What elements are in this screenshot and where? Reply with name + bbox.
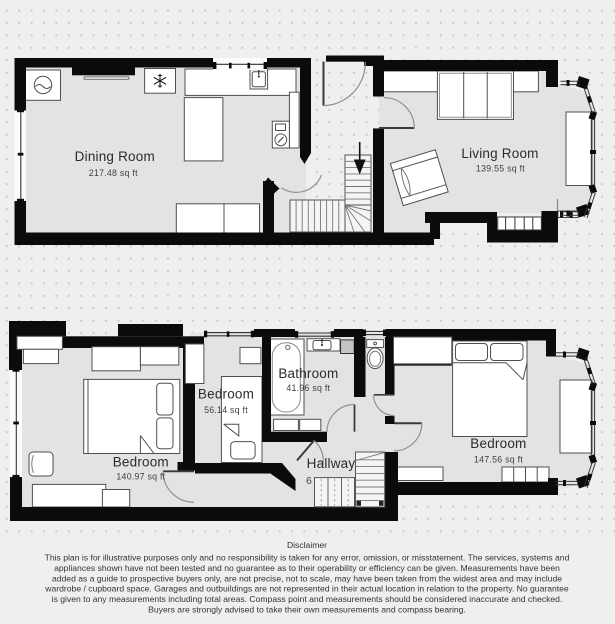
svg-text:Bathroom: Bathroom bbox=[278, 366, 338, 381]
svg-text:wardrobe / cupboard space. Gar: wardrobe / cupboard space. Garages and o… bbox=[44, 584, 569, 594]
svg-text:139.55 sq ft: 139.55 sq ft bbox=[476, 163, 525, 173]
svg-text:Dining Room: Dining Room bbox=[75, 149, 155, 164]
svg-text:is given to any measurements i: is given to any measurements including t… bbox=[52, 594, 563, 604]
svg-text:Buyers are strongly advised to: Buyers are strongly advised to take thei… bbox=[148, 605, 466, 615]
svg-text:Living Room: Living Room bbox=[461, 146, 538, 161]
svg-text:Bedroom: Bedroom bbox=[198, 387, 254, 402]
svg-text:217.48 sq ft: 217.48 sq ft bbox=[89, 168, 138, 178]
svg-text:This plan is for illustrative: This plan is for illustrative purposes o… bbox=[45, 553, 570, 563]
svg-text:140.97 sq ft: 140.97 sq ft bbox=[116, 471, 165, 481]
svg-text:147.56 sq ft: 147.56 sq ft bbox=[474, 455, 523, 465]
svg-text:Bedroom: Bedroom bbox=[470, 436, 526, 451]
svg-text:41.96 sq ft: 41.96 sq ft bbox=[286, 383, 330, 393]
svg-text:6: 6 bbox=[306, 475, 312, 487]
svg-text:56.14 sq ft: 56.14 sq ft bbox=[204, 405, 248, 415]
svg-text:Hallway: Hallway bbox=[307, 456, 356, 471]
svg-text:added as a guide to prospectiv: added as a guide to prospective buyers o… bbox=[52, 573, 562, 583]
svg-text:appliances shown have not been: appliances shown have not been tested an… bbox=[54, 563, 560, 573]
svg-text:Bedroom: Bedroom bbox=[113, 454, 169, 469]
svg-text:Disclaimer: Disclaimer bbox=[287, 540, 327, 550]
